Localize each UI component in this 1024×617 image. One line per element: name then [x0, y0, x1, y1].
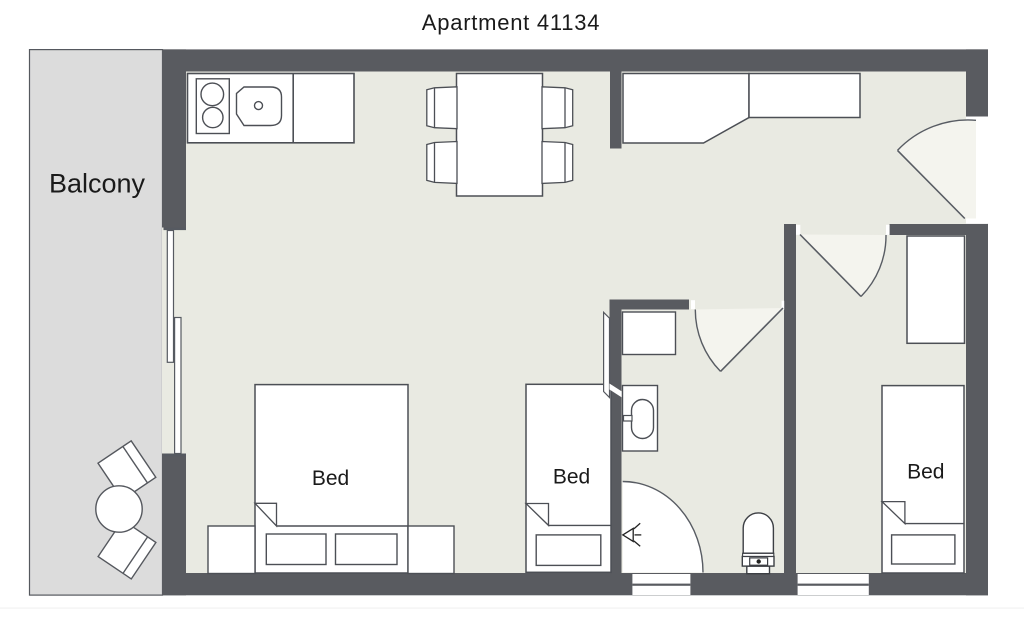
svg-text:Balcony: Balcony	[49, 169, 146, 199]
svg-text:Bed: Bed	[553, 465, 590, 488]
svg-text:Bed: Bed	[907, 461, 944, 484]
svg-text:Bed: Bed	[312, 467, 349, 490]
svg-text:Apartment 41134: Apartment 41134	[422, 10, 600, 35]
